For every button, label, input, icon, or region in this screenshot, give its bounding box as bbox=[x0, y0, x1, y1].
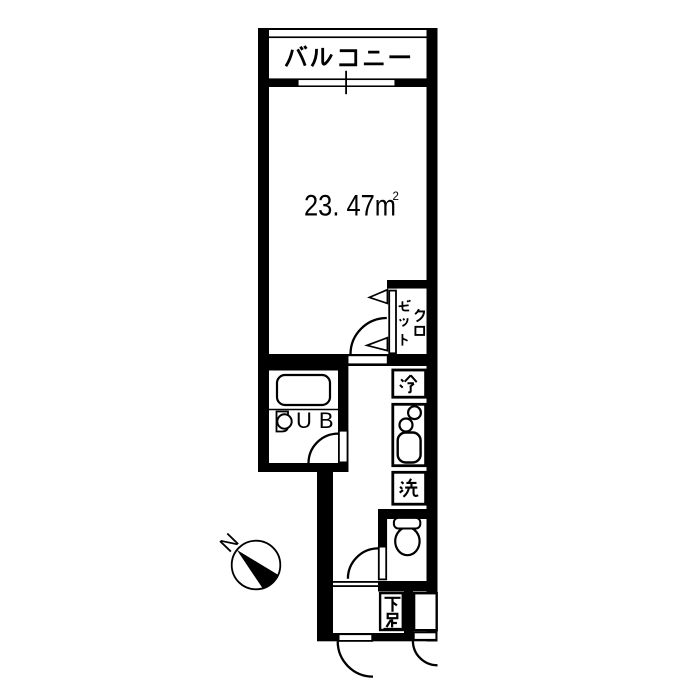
svg-text:2: 2 bbox=[393, 191, 399, 203]
svg-text:23. 47m: 23. 47m bbox=[304, 190, 396, 223]
svg-text:UB: UB bbox=[296, 408, 341, 433]
